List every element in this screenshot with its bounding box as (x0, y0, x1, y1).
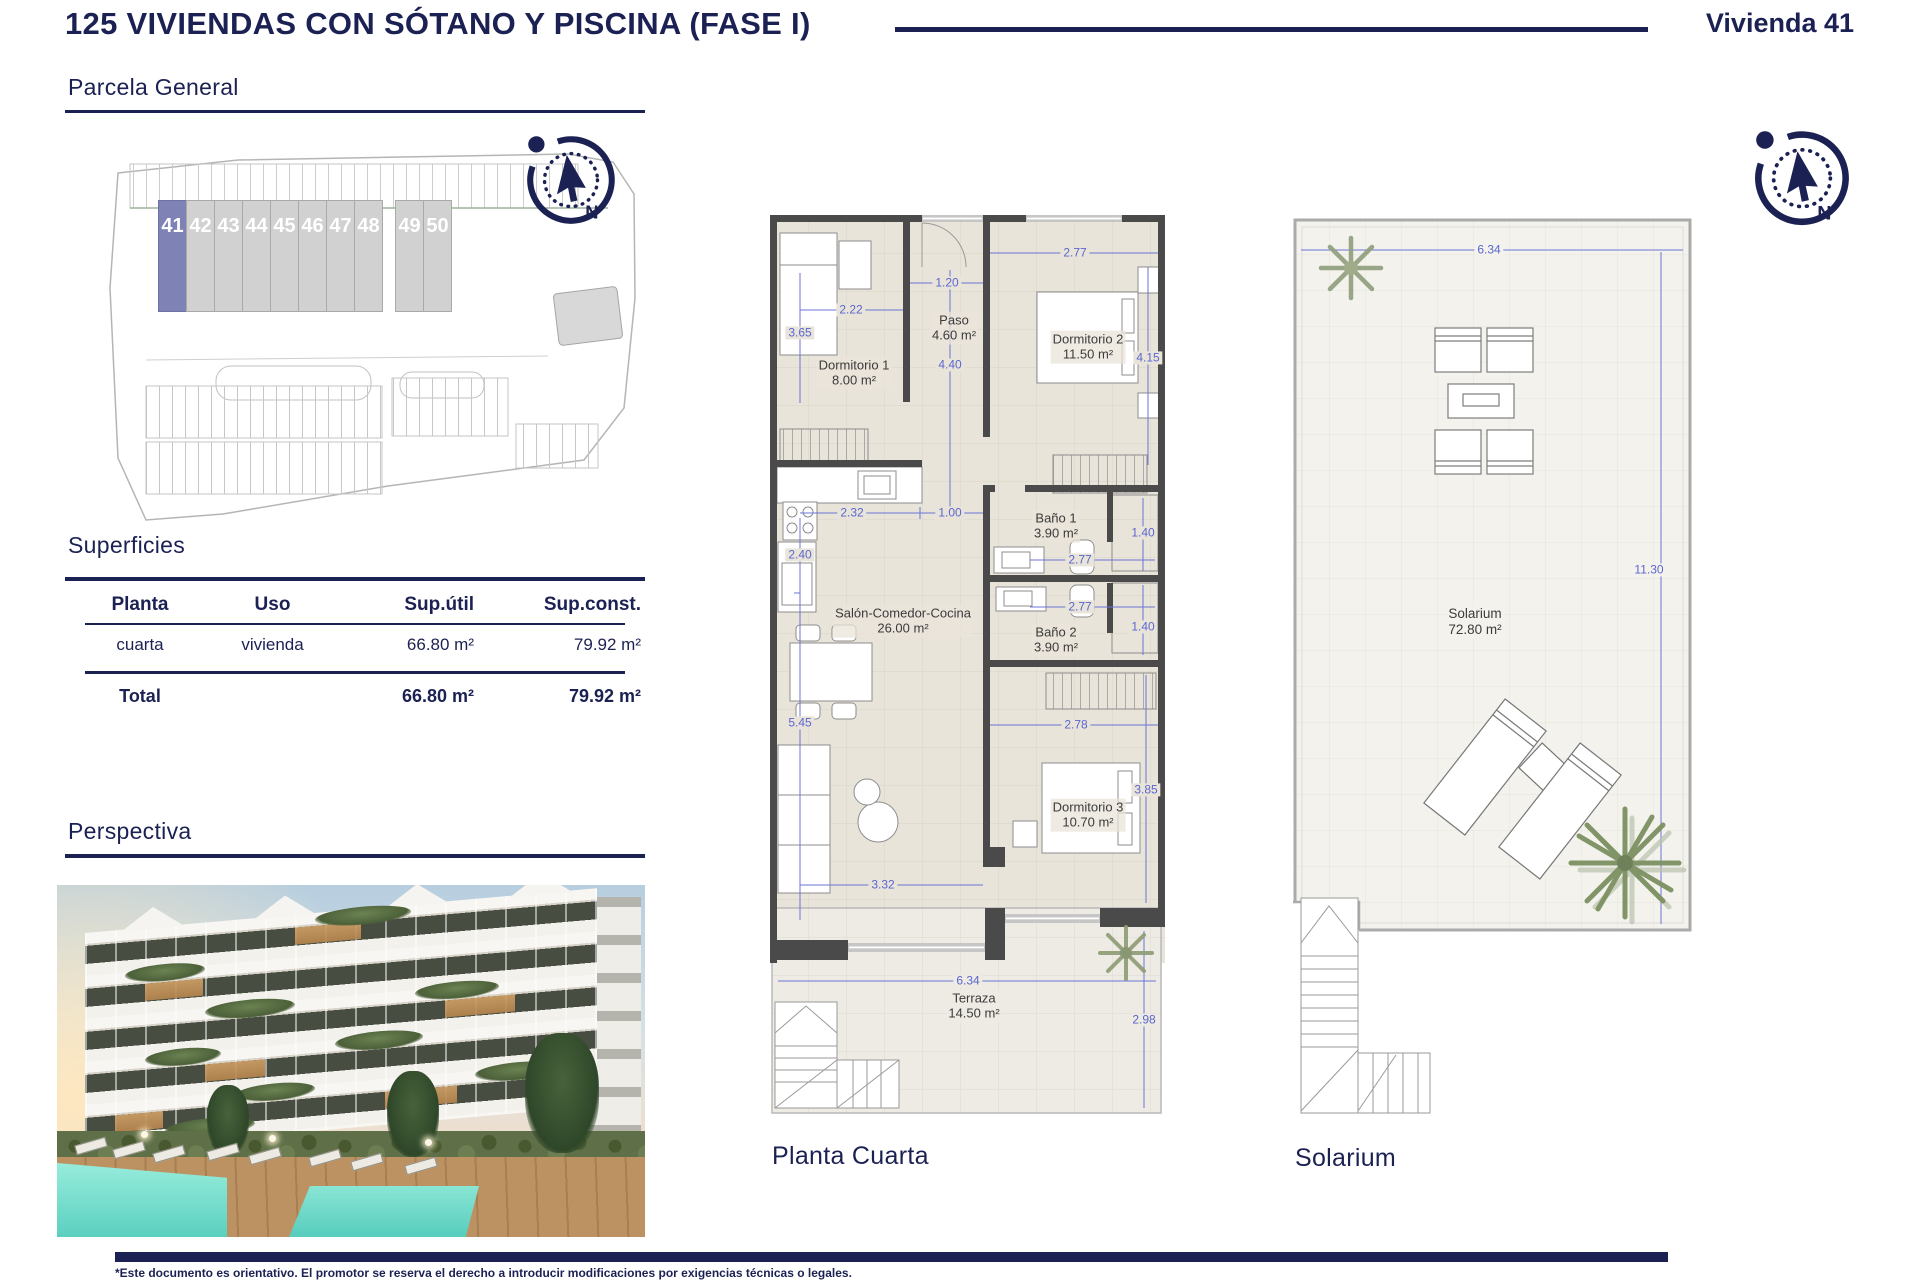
dim-label: 3.65 (785, 326, 814, 339)
dim-label: 2.98 (1129, 1013, 1158, 1026)
room-dormitorio-1: Dormitorio 1 8.00 m² (817, 357, 892, 390)
render-pool-center (289, 1186, 479, 1237)
footer-rule (115, 1252, 1668, 1262)
floorplan-planta-cuarta: Dormitorio 1 8.00 m² Paso 4.60 m² Dormit… (770, 215, 1190, 1120)
unit-49[interactable]: 49 (395, 200, 424, 312)
perspectiva-rule (65, 854, 645, 858)
unit-47[interactable]: 47 (326, 200, 355, 312)
dim-label: 3.85 (1131, 783, 1160, 796)
room-paso: Paso 4.60 m² (930, 312, 978, 345)
table-header-row: Planta Uso Sup.útil Sup.const. (65, 594, 643, 616)
section-superficies: Superficies (68, 532, 185, 559)
superficies-table: Planta Uso Sup.útil Sup.const. cuarta vi… (65, 594, 643, 707)
section-parcela-general: Parcela General (68, 74, 239, 101)
page-title: 125 VIVIENDAS CON SÓTANO Y PISCINA (FASE… (65, 6, 811, 42)
compass-icon: N (1742, 116, 1862, 241)
table-head-rule (85, 623, 625, 625)
room-bano-1: Baño 1 3.90 m² (1032, 510, 1080, 543)
superficies-rule (65, 577, 645, 581)
dim-label: 6.34 (953, 974, 982, 987)
unit-44[interactable]: 44 (242, 200, 271, 312)
dim-label: 4.15 (1133, 351, 1162, 364)
render-building (85, 888, 597, 1151)
section-perspectiva: Perspectiva (68, 818, 191, 845)
unit-row: 41 42 43 44 45 46 47 48 49 50 (158, 200, 451, 312)
dim-label: 2.77 (1060, 246, 1089, 259)
cell-uso: vivienda (215, 635, 330, 655)
parcela-rule (65, 110, 645, 113)
render-lamp (269, 1135, 276, 1142)
dim-label: 2.77 (1065, 553, 1094, 566)
compass-n-label: N (1817, 203, 1831, 225)
room-dormitorio-3: Dormitorio 3 10.70 m² (1051, 799, 1126, 832)
render-tree (525, 1033, 599, 1153)
table-total-row: Total 66.80 m² 79.92 m² (65, 686, 643, 707)
plan-sheet: 125 VIVIENDAS CON SÓTANO Y PISCINA (FASE… (0, 0, 1920, 1280)
room-salon-comedor-cocina: Salón-Comedor-Cocina 26.00 m² (833, 605, 973, 638)
col-planta: Planta (65, 594, 215, 616)
unit-42[interactable]: 42 (186, 200, 215, 312)
dim-label: 1.00 (935, 506, 964, 519)
unit-50[interactable]: 50 (423, 200, 452, 312)
dim-label: 2.32 (837, 506, 866, 519)
room-bano-2: Baño 2 3.90 m² (1032, 624, 1080, 657)
solarium-drawing (1293, 218, 1713, 1123)
col-uso: Uso (215, 594, 330, 616)
dim-label: 3.32 (868, 878, 897, 891)
total-label: Total (65, 686, 215, 707)
unit-43[interactable]: 43 (214, 200, 243, 312)
total-sup-const: 79.92 m² (480, 686, 643, 707)
cell-sup-util: 66.80 m² (330, 635, 480, 655)
solarium-caption: Solarium (1295, 1144, 1396, 1173)
render-lamp (425, 1139, 432, 1146)
unit-48[interactable]: 48 (354, 200, 383, 312)
unit-41[interactable]: 41 (158, 200, 187, 312)
dim-label: 11.30 (1631, 563, 1666, 576)
compass-n-label: N (585, 202, 598, 223)
room-dormitorio-2: Dormitorio 2 11.50 m² (1051, 331, 1126, 364)
col-sup-util: Sup.útil (330, 594, 480, 616)
unit-45[interactable]: 45 (270, 200, 299, 312)
col-sup-const: Sup.const. (480, 594, 643, 616)
header-rule (895, 27, 1648, 32)
dim-label: 2.78 (1061, 718, 1090, 731)
cell-sup-const: 79.92 m² (480, 635, 643, 655)
room-terraza: Terraza 14.50 m² (946, 990, 1001, 1023)
unit-label: Vivienda 41 (1706, 8, 1854, 39)
dim-label: 2.77 (1065, 600, 1094, 613)
dim-label: 1.20 (932, 276, 961, 289)
floorplan-caption: Planta Cuarta (772, 1142, 929, 1171)
footer-disclaimer: *Este documento es orientativo. El promo… (115, 1266, 852, 1280)
dim-label: 6.34 (1474, 243, 1503, 256)
solarium-plan: Solarium 72.80 m² 6.34 11.30 (1293, 218, 1713, 1123)
room-solarium: Solarium 72.80 m² (1446, 605, 1503, 639)
cell-planta: cuarta (65, 635, 215, 655)
table-row: cuarta vivienda 66.80 m² 79.92 m² (65, 635, 643, 655)
unit-46[interactable]: 46 (298, 200, 327, 312)
dim-label: 4.40 (935, 358, 964, 371)
table-total-rule (85, 671, 625, 674)
dim-label: 2.22 (836, 303, 865, 316)
building-render (57, 885, 645, 1237)
dim-label: 1.40 (1128, 526, 1157, 539)
render-lamp (141, 1131, 148, 1138)
unit-row-gap (382, 200, 395, 312)
compass-icon: N (515, 122, 627, 239)
total-sup-util: 66.80 m² (330, 686, 480, 707)
dim-label: 2.40 (785, 548, 814, 561)
dim-label: 5.45 (785, 716, 814, 729)
dim-label: 1.40 (1128, 620, 1157, 633)
